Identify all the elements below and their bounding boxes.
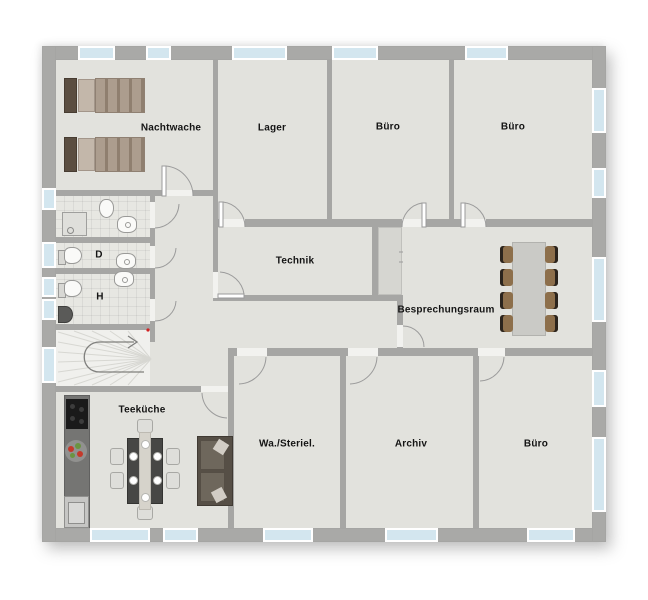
room-label-technik: Technik xyxy=(276,256,314,267)
window xyxy=(385,528,438,542)
room-label-archiv: Archiv xyxy=(395,439,427,450)
chair xyxy=(166,472,180,489)
basin-drain xyxy=(124,259,130,265)
door-opening xyxy=(150,299,155,321)
floor-plan: Nachtwache Lager Büro Büro Technik Bespr… xyxy=(0,0,648,600)
room-label-buero-1: Büro xyxy=(376,122,400,133)
room-label-lager: Lager xyxy=(258,123,286,134)
door-opening xyxy=(213,272,218,298)
chair xyxy=(500,315,513,332)
wall xyxy=(213,60,218,301)
plate xyxy=(129,452,138,461)
plate xyxy=(153,452,162,461)
chair xyxy=(500,292,513,309)
plate xyxy=(141,440,150,449)
chair xyxy=(545,269,558,286)
room-label-nachtwache: Nachtwache xyxy=(141,123,201,134)
window xyxy=(146,46,171,60)
meeting-table xyxy=(512,242,546,336)
chair xyxy=(110,472,124,489)
room-label-buero-2: Büro xyxy=(501,122,525,133)
plate xyxy=(141,493,150,502)
fruit xyxy=(70,453,75,458)
window xyxy=(592,168,606,198)
bed-headboard xyxy=(64,137,77,172)
wall xyxy=(327,60,332,219)
fruit xyxy=(77,451,83,457)
burner xyxy=(70,404,75,409)
door-opening xyxy=(201,386,228,392)
door-opening xyxy=(220,219,245,227)
basin-drain xyxy=(125,222,131,228)
window xyxy=(592,88,606,133)
window xyxy=(527,528,575,542)
fruit-bowl xyxy=(65,440,87,462)
bed-duvet xyxy=(95,78,145,113)
bed-headboard xyxy=(64,78,77,113)
wall xyxy=(228,348,592,356)
basin-drain xyxy=(122,277,128,283)
chair xyxy=(545,315,558,332)
door-opening xyxy=(397,325,403,347)
wall xyxy=(340,356,346,528)
toilet xyxy=(64,247,82,264)
window xyxy=(78,46,115,60)
kitchen-sink xyxy=(64,496,89,528)
door-opening xyxy=(402,219,426,227)
room-label-teekueche: Teeküche xyxy=(119,405,166,416)
chair xyxy=(500,246,513,263)
door-opening xyxy=(348,348,378,356)
door-opening xyxy=(461,219,486,227)
plate xyxy=(153,476,162,485)
shaft xyxy=(378,227,402,295)
door-opening xyxy=(150,246,155,268)
sofa xyxy=(197,436,233,506)
plate xyxy=(129,476,138,485)
window xyxy=(232,46,287,60)
shower-drain xyxy=(67,227,74,234)
window xyxy=(592,370,606,407)
chair xyxy=(110,448,124,465)
door-opening xyxy=(478,348,505,356)
window xyxy=(263,528,313,542)
window xyxy=(592,257,606,322)
burner xyxy=(70,416,75,421)
wall xyxy=(150,330,155,342)
sink-basin xyxy=(68,502,85,524)
door-opening xyxy=(150,202,155,228)
window xyxy=(592,437,606,512)
window xyxy=(465,46,508,60)
staircase xyxy=(56,330,150,386)
window xyxy=(42,277,56,297)
wall xyxy=(449,60,454,219)
toilet xyxy=(64,280,82,297)
wall xyxy=(213,295,403,301)
burner xyxy=(79,419,84,424)
window xyxy=(42,188,56,210)
chair xyxy=(545,246,558,263)
window xyxy=(42,242,56,268)
room-label-wc-herren: H xyxy=(96,292,103,303)
door-opening xyxy=(237,348,267,356)
chair xyxy=(545,292,558,309)
room-label-buero-3: Büro xyxy=(524,439,548,450)
bed-duvet xyxy=(95,137,145,172)
chair xyxy=(500,269,513,286)
room-label-wa-steriel: Wa./Steriel. xyxy=(259,439,315,450)
chair xyxy=(166,448,180,465)
room-label-besprechungsraum: Besprechungsraum xyxy=(397,305,494,316)
bed xyxy=(64,137,145,172)
washbasin xyxy=(114,271,134,287)
wall xyxy=(42,46,606,60)
window xyxy=(42,299,56,320)
window xyxy=(332,46,378,60)
door-opening xyxy=(163,190,193,196)
window xyxy=(90,528,150,542)
washbasin xyxy=(117,216,137,233)
window xyxy=(42,347,56,383)
stove xyxy=(66,399,88,429)
fruit xyxy=(75,443,81,449)
burner xyxy=(79,407,84,412)
shower xyxy=(62,212,87,236)
fruit xyxy=(68,446,74,452)
toilet xyxy=(99,199,114,218)
wall xyxy=(473,356,479,528)
window xyxy=(163,528,198,542)
washbasin xyxy=(116,253,136,269)
bed xyxy=(64,78,145,113)
bed-pillow xyxy=(78,79,95,112)
room-label-wc-damen: D xyxy=(95,250,102,261)
urinal xyxy=(58,306,73,323)
bed-pillow xyxy=(78,138,95,171)
chair xyxy=(137,419,153,433)
